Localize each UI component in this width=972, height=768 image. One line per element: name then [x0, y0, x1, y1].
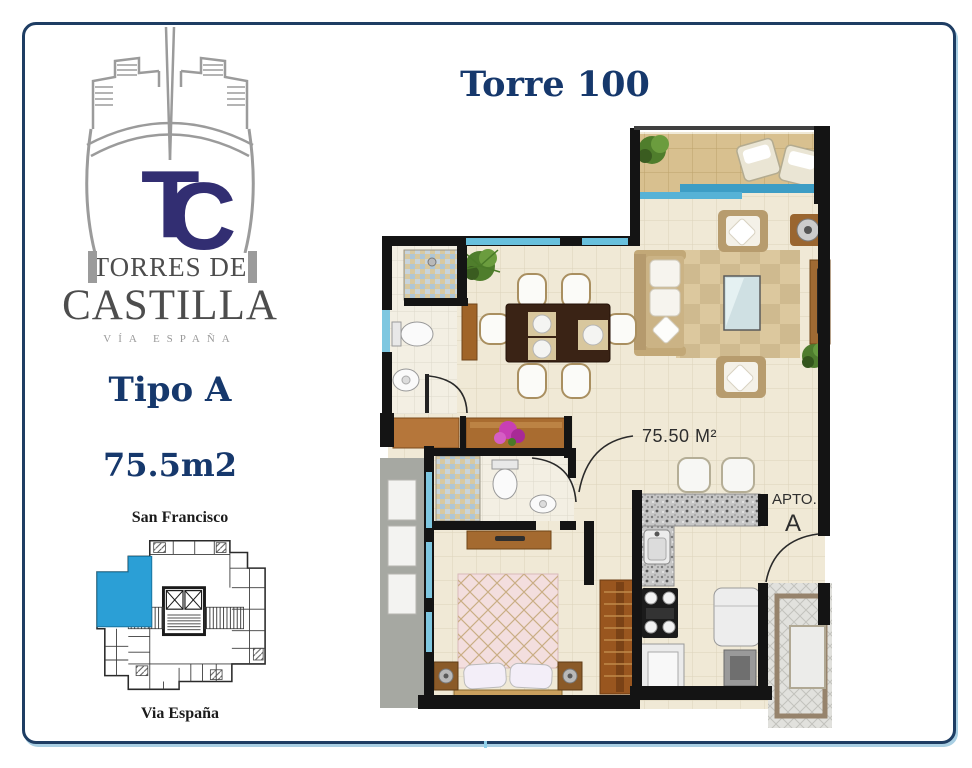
bathroom-1 [390, 246, 467, 414]
tc-monogram: C T [141, 151, 236, 253]
bidet [530, 495, 556, 513]
washer [724, 650, 756, 686]
ac-unit [388, 574, 416, 614]
toilet [392, 322, 433, 346]
armchair [716, 356, 766, 398]
brochure-page: C T TORRES DE CASTILLA VÍA ESPAÑA Tipo A… [0, 0, 972, 768]
counter [640, 494, 760, 526]
fridge [714, 588, 760, 646]
brand-name-line2: CASTILLA [25, 283, 315, 329]
area-label: 75.50 M² [642, 426, 717, 446]
nightstand [558, 662, 582, 690]
brand-name-row: TORRES DE [55, 251, 285, 285]
floorplan: 75.50 M² APTO. A [380, 124, 850, 740]
logo: C T [55, 25, 285, 253]
dining-table [506, 304, 610, 362]
logo-right-bar [248, 251, 257, 283]
kitchen-sink [644, 530, 670, 564]
bathroom-2 [436, 456, 576, 521]
sink [393, 369, 419, 391]
sofa [634, 250, 686, 356]
brand-tagline: VÍA ESPAÑA [25, 333, 315, 345]
keyplan-unit-highlight [97, 556, 152, 626]
balcony [634, 134, 824, 199]
unit-type-label: Tipo A [25, 370, 315, 410]
shower [436, 456, 480, 521]
armchair [718, 210, 768, 252]
monogram-letter-t: T [141, 151, 200, 253]
ac-unit [388, 526, 416, 566]
keyplan-south-label: Via España [70, 705, 290, 723]
hall-cabinet [462, 304, 477, 360]
logo-left-bar [88, 251, 97, 283]
balcony-window-sill [680, 184, 824, 193]
dresser [467, 531, 551, 549]
coffee-table [724, 276, 760, 330]
ac-unit [388, 480, 416, 520]
nightstand [434, 662, 458, 690]
unit-area-label: 75.5m2 [25, 446, 315, 484]
stove [642, 588, 678, 638]
service-ledge [380, 458, 424, 708]
keyplan [83, 531, 283, 703]
apt-label: APTO. [772, 491, 817, 508]
balcony-window-sill [636, 192, 742, 199]
keyplan-north-label: San Francisco [70, 509, 290, 527]
tower-title: Torre 100 [390, 64, 720, 105]
door-leaf [425, 374, 429, 413]
toilet [492, 460, 518, 499]
apt-letter: A [785, 510, 801, 537]
border-artifact [484, 741, 487, 748]
